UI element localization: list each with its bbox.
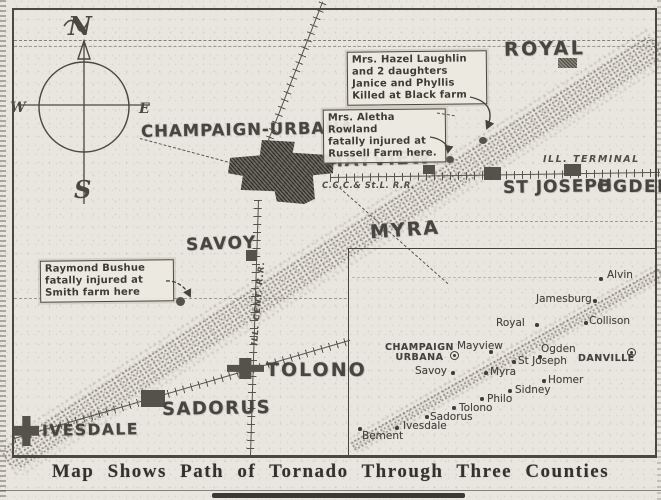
inset-town-marker-bement [358,427,362,431]
newspaper-torn-edge-left [0,0,6,500]
marker-st-joseph [484,167,501,180]
marker-black-farm [479,137,487,144]
inset-town-marker-alvin [599,277,603,281]
inset-town-marker-st-joseph [512,360,516,364]
inset-town-label-sidney: Sidney [515,384,551,396]
inset-town-label-collison: Collison [589,315,630,327]
inset-town-marker-philo [480,397,484,401]
inset-town-label-mayview: Mayview [457,340,503,352]
annotation-hazel-laughlin: Mrs. Hazel Laughlin and 2 daughters Jani… [347,50,488,105]
compass-east-letter: E [138,101,150,117]
inset-town-label-danville: DANVILLE [578,354,635,364]
town-label-tolono: TOLONO [266,359,367,381]
newspaper-tornado-map-clipping: AlvinJamesburgRoyalCollisonCHAMPAIGN URB… [0,0,661,500]
bottom-heavy-rule [212,493,465,498]
inset-town-marker-jamesburg [593,299,597,303]
inset-town-marker-sadorus [425,415,429,419]
inset-town-dot-danville [630,351,633,354]
inset-town-marker-ivesdale [395,426,399,430]
inset-town-marker-mayview [489,350,493,354]
inset-town-label-bement: Bement [362,430,403,442]
inset-town-label-homer: Homer [548,374,583,386]
railroad-label-ill-terminal: ILL. TERMINAL [543,154,640,165]
town-label-royal: ROYAL [504,37,586,60]
inset-town-marker-royal [535,323,539,327]
annotation-line: Russell Farm here. [328,147,441,160]
compass-south-letter: S [74,175,91,204]
inset-town-label-myra: Myra [490,366,516,378]
annotation-line: Mrs. Aletha Rowland [328,111,441,136]
inset-town-marker-myra [484,371,488,375]
inset-town-marker-champaign-urbana [450,351,459,360]
annotation-line: Mrs. Hazel Laughlin [352,53,482,66]
marker-ogden [564,164,581,176]
inset-town-label-ogden: Ogden [541,343,576,355]
town-label-ogden: OGDEN [597,177,661,197]
annotation-aletha-rowland: Mrs. Aletha Rowland fatally injured at R… [323,108,447,163]
railroad-label-big-four: C.C.C.& St.L. R.R. [322,181,415,191]
compass-west-letter: W [10,100,27,116]
inset-town-dot-champaign-urbana [453,354,456,357]
inset-town-label-st-joseph: St Joseph [518,355,567,367]
town-label-sadorus: SADORUS [162,397,271,420]
marker-smith-farm [176,297,185,306]
inset-town-label-champaign-urbana: CHAMPAIGN URBANA [385,343,454,363]
inset-town-label-alvin: Alvin [607,269,633,281]
map-caption: Map Shows Path of Tornado Through Three … [52,461,609,482]
inset-town-marker-savoy [451,371,455,375]
compass-rose: N S W E [8,2,178,217]
town-label-ivesdale: IVESDALE [42,420,139,440]
newspaper-torn-edge-right [657,0,661,500]
inset-town-label-ivesdale: Ivesdale [403,420,447,432]
town-label-savoy: SAVOY [186,233,257,255]
marker-russell-farm [446,156,454,163]
annotation-line: Smith farm here [45,286,169,299]
inset-town-marker-sidney [508,389,512,393]
inset-town-marker-collison [584,321,588,325]
inset-section-line [352,277,602,278]
inset-town-label-jamesburg: Jamesburg [536,293,592,305]
compass-north-letter: N [67,12,93,42]
inset-town-marker-danville [627,348,636,357]
bottom-rule [0,490,661,491]
inset-town-marker-tolono [452,406,456,410]
annotation-raymond-bushue: Raymond Bushue fatally injured at Smith … [40,259,174,302]
inset-town-marker-homer [542,379,546,383]
inset-town-label-royal: Royal [496,317,525,329]
annotation-line: Killed at Black farm [352,89,482,102]
inset-town-label-savoy: Savoy [415,365,447,377]
caption-row: Map Shows Path of Tornado Through Three … [0,461,661,483]
